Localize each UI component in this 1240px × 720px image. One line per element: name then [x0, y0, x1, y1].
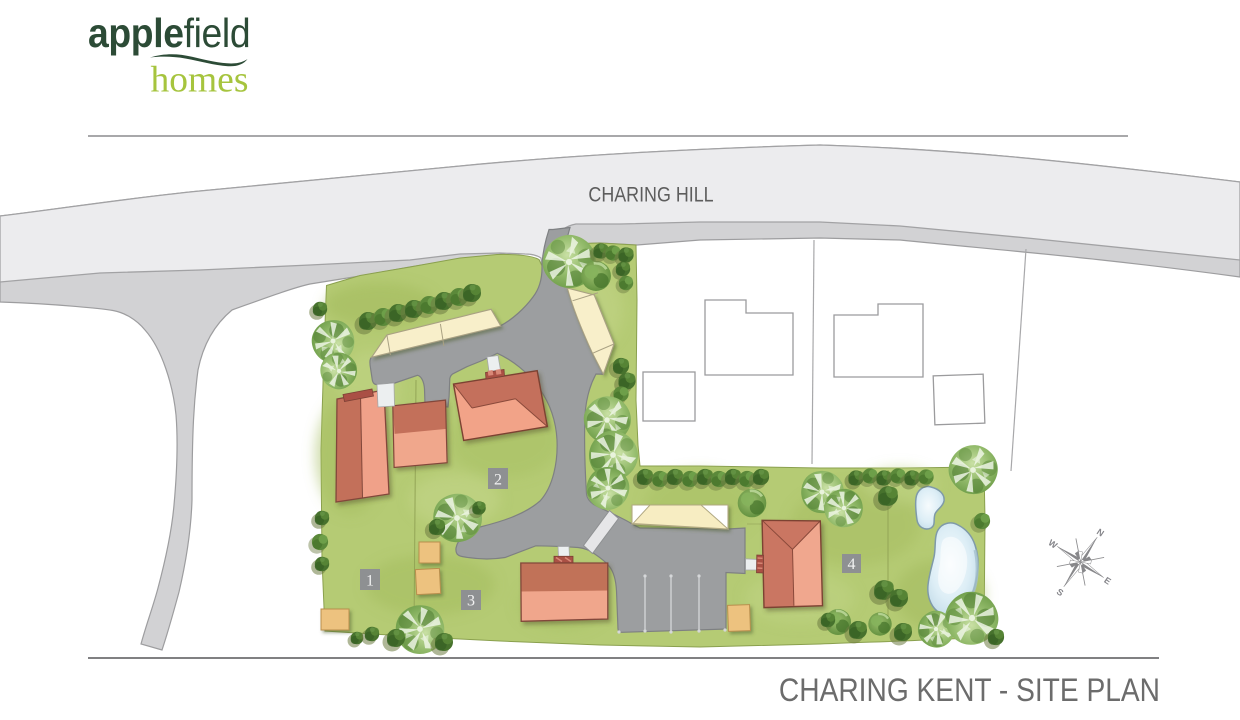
svg-text:N: N [1095, 527, 1106, 539]
svg-text:1: 1 [366, 573, 374, 590]
svg-text:W: W [1047, 537, 1060, 550]
svg-text:E: E [1102, 575, 1113, 587]
svg-text:applefield: applefield [88, 11, 250, 56]
svg-text:homes: homes [151, 60, 249, 101]
svg-text:2: 2 [494, 472, 502, 489]
svg-text:3: 3 [467, 593, 475, 610]
svg-text:CHARING KENT - SITE PLAN: CHARING KENT - SITE PLAN [779, 673, 1160, 708]
svg-text:S: S [1055, 586, 1066, 598]
svg-text:4: 4 [848, 556, 856, 573]
svg-text:CHARING HILL: CHARING HILL [588, 183, 713, 207]
